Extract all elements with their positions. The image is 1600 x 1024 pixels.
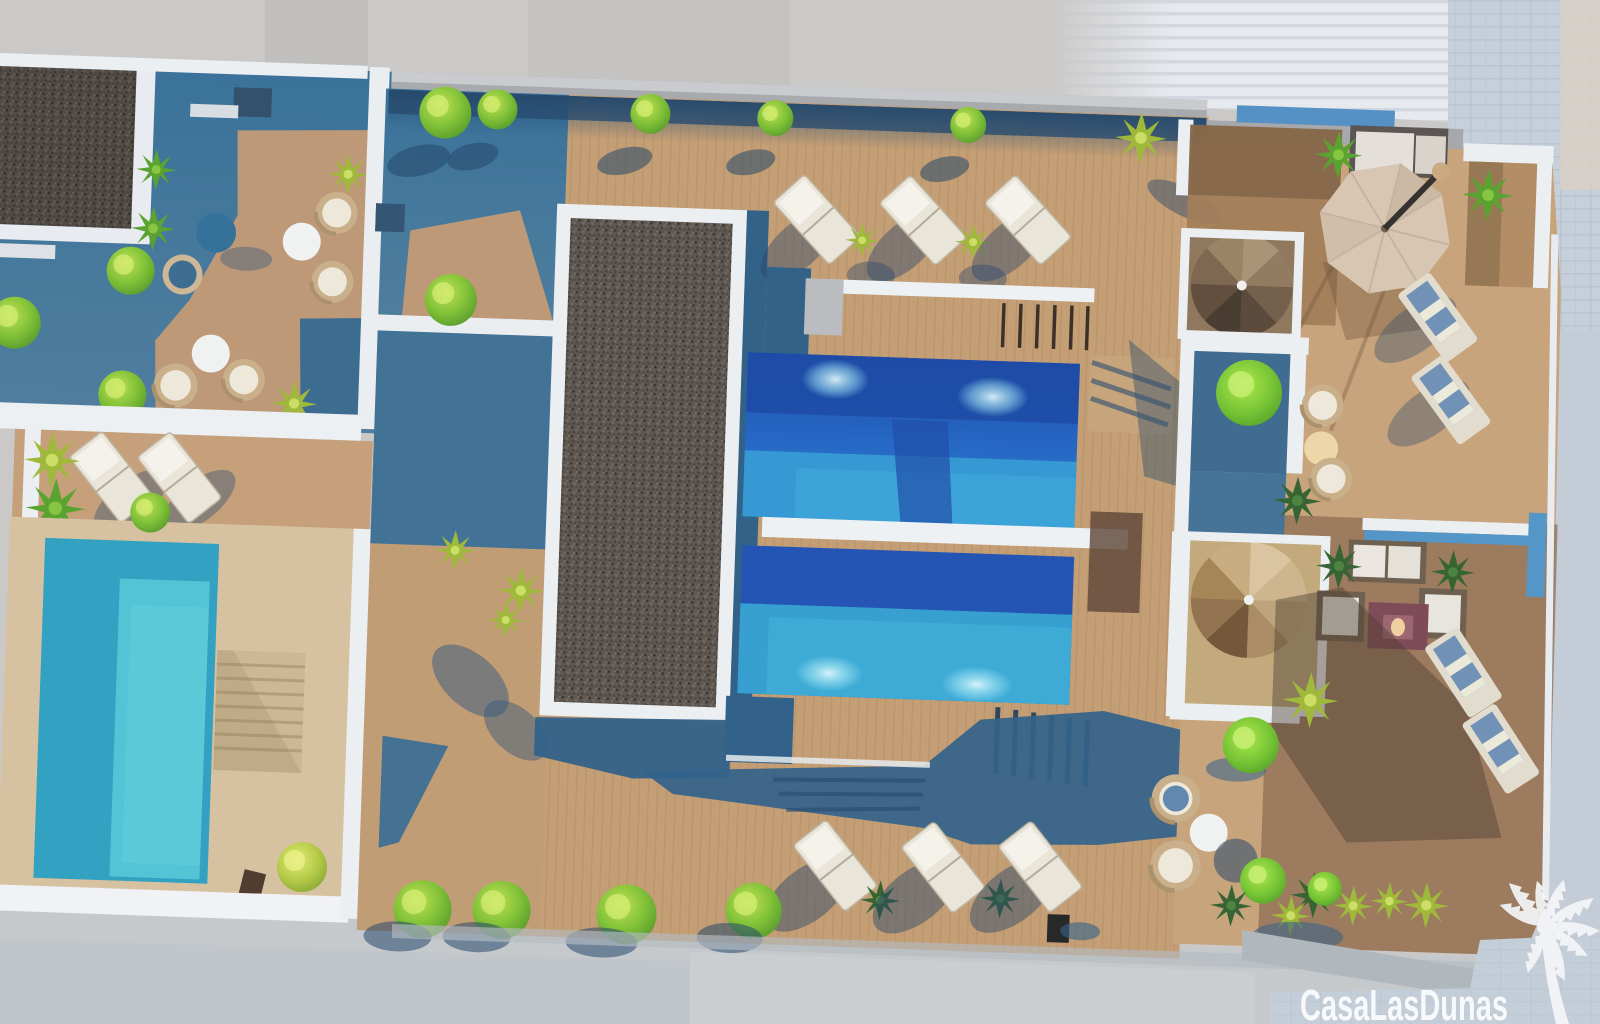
- svg-text:CasaLasDunas: CasaLasDunas: [1300, 981, 1508, 1024]
